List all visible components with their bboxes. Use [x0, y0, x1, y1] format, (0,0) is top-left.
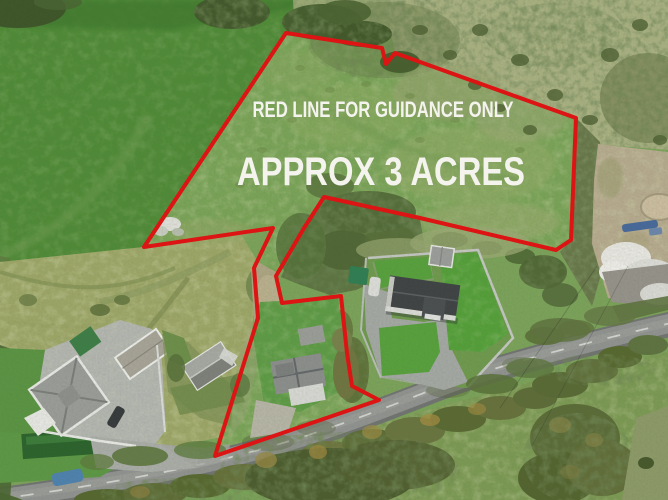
- svg-text:RED LINE FOR GUIDANCE ONLY: RED LINE FOR GUIDANCE ONLY: [253, 97, 514, 122]
- svg-text:APPROX 3 ACRES: APPROX 3 ACRES: [237, 150, 525, 194]
